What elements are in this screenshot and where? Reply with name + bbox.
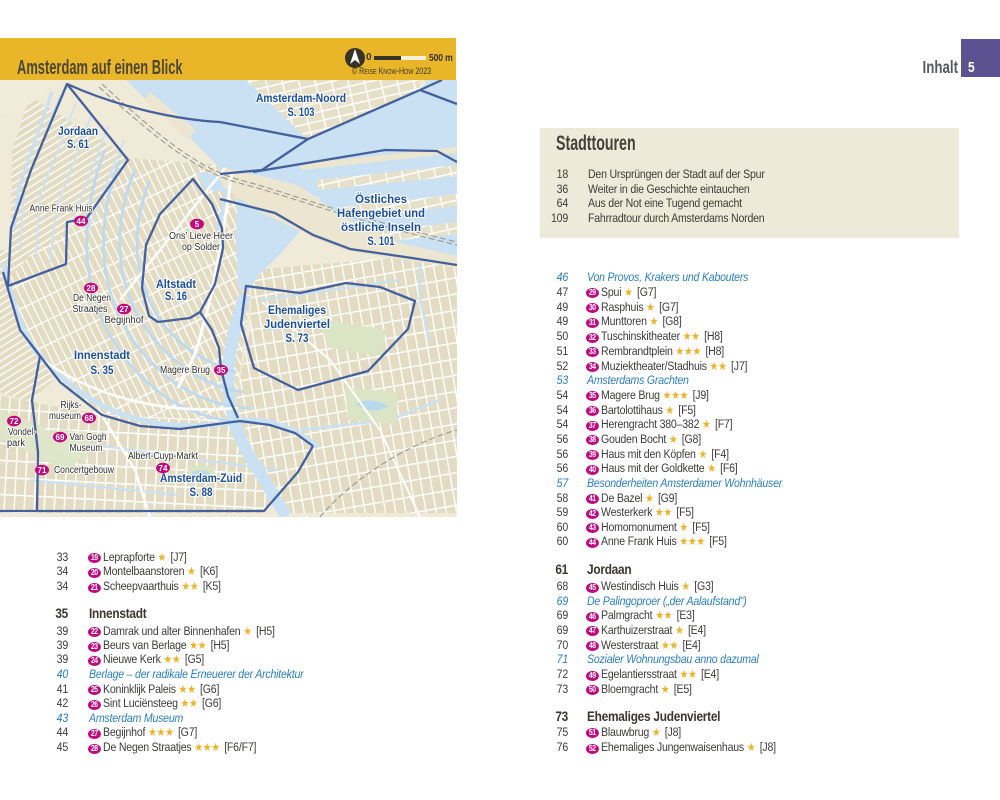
svg-text:74: 74 bbox=[159, 464, 168, 473]
svg-text:Jordaan: Jordaan bbox=[58, 124, 98, 138]
svg-text:Hafengebiet und: Hafengebiet und bbox=[337, 206, 425, 220]
svg-text:Rijks-: Rijks- bbox=[61, 400, 82, 411]
svg-text:S. 61: S. 61 bbox=[67, 137, 89, 151]
svg-text:Magere Brug: Magere Brug bbox=[160, 365, 210, 376]
svg-text:Concertgebouw: Concertgebouw bbox=[54, 465, 115, 476]
svg-text:S. 103: S. 103 bbox=[288, 105, 315, 119]
svg-text:Museum: Museum bbox=[70, 443, 103, 454]
svg-text:S. 88: S. 88 bbox=[190, 485, 213, 499]
svg-text:Judenviertel: Judenviertel bbox=[264, 317, 330, 331]
svg-text:östliche Inseln: östliche Inseln bbox=[341, 220, 421, 234]
svg-text:museum: museum bbox=[49, 411, 81, 422]
svg-text:Van Gogh: Van Gogh bbox=[70, 432, 107, 443]
svg-text:35: 35 bbox=[217, 366, 226, 375]
svg-text:S. 101: S. 101 bbox=[368, 234, 395, 248]
svg-text:Albert-Cuyp-Markt: Albert-Cuyp-Markt bbox=[128, 451, 198, 462]
svg-text:27: 27 bbox=[120, 305, 129, 314]
svg-text:72: 72 bbox=[10, 417, 19, 426]
svg-text:S. 16: S. 16 bbox=[165, 289, 187, 303]
svg-text:69: 69 bbox=[56, 433, 65, 442]
svg-text:28: 28 bbox=[87, 284, 96, 293]
svg-text:Begijnhof: Begijnhof bbox=[105, 315, 144, 326]
svg-text:De Negen: De Negen bbox=[73, 293, 111, 304]
svg-text:Anne Frank Huis: Anne Frank Huis bbox=[30, 204, 93, 215]
svg-text:Vondel-: Vondel- bbox=[8, 427, 36, 438]
svg-text:S. 73: S. 73 bbox=[286, 331, 309, 345]
svg-text:68: 68 bbox=[85, 414, 94, 423]
svg-text:park: park bbox=[7, 438, 26, 449]
svg-text:Ehemaliges: Ehemaliges bbox=[268, 303, 326, 317]
svg-text:Amsterdam-Zuid: Amsterdam-Zuid bbox=[160, 471, 242, 485]
svg-text:S. 35: S. 35 bbox=[91, 363, 114, 377]
svg-text:71: 71 bbox=[38, 466, 47, 475]
svg-text:5: 5 bbox=[195, 220, 200, 229]
svg-text:Amsterdam-Noord: Amsterdam-Noord bbox=[256, 91, 346, 105]
svg-text:op Solder: op Solder bbox=[182, 242, 221, 253]
svg-text:Ons’ Lieve Heer: Ons’ Lieve Heer bbox=[169, 231, 234, 242]
svg-text:Innenstadt: Innenstadt bbox=[74, 348, 130, 362]
svg-text:Straatjes: Straatjes bbox=[73, 304, 108, 315]
svg-text:44: 44 bbox=[77, 217, 86, 226]
svg-text:Östliches: Östliches bbox=[355, 191, 407, 206]
